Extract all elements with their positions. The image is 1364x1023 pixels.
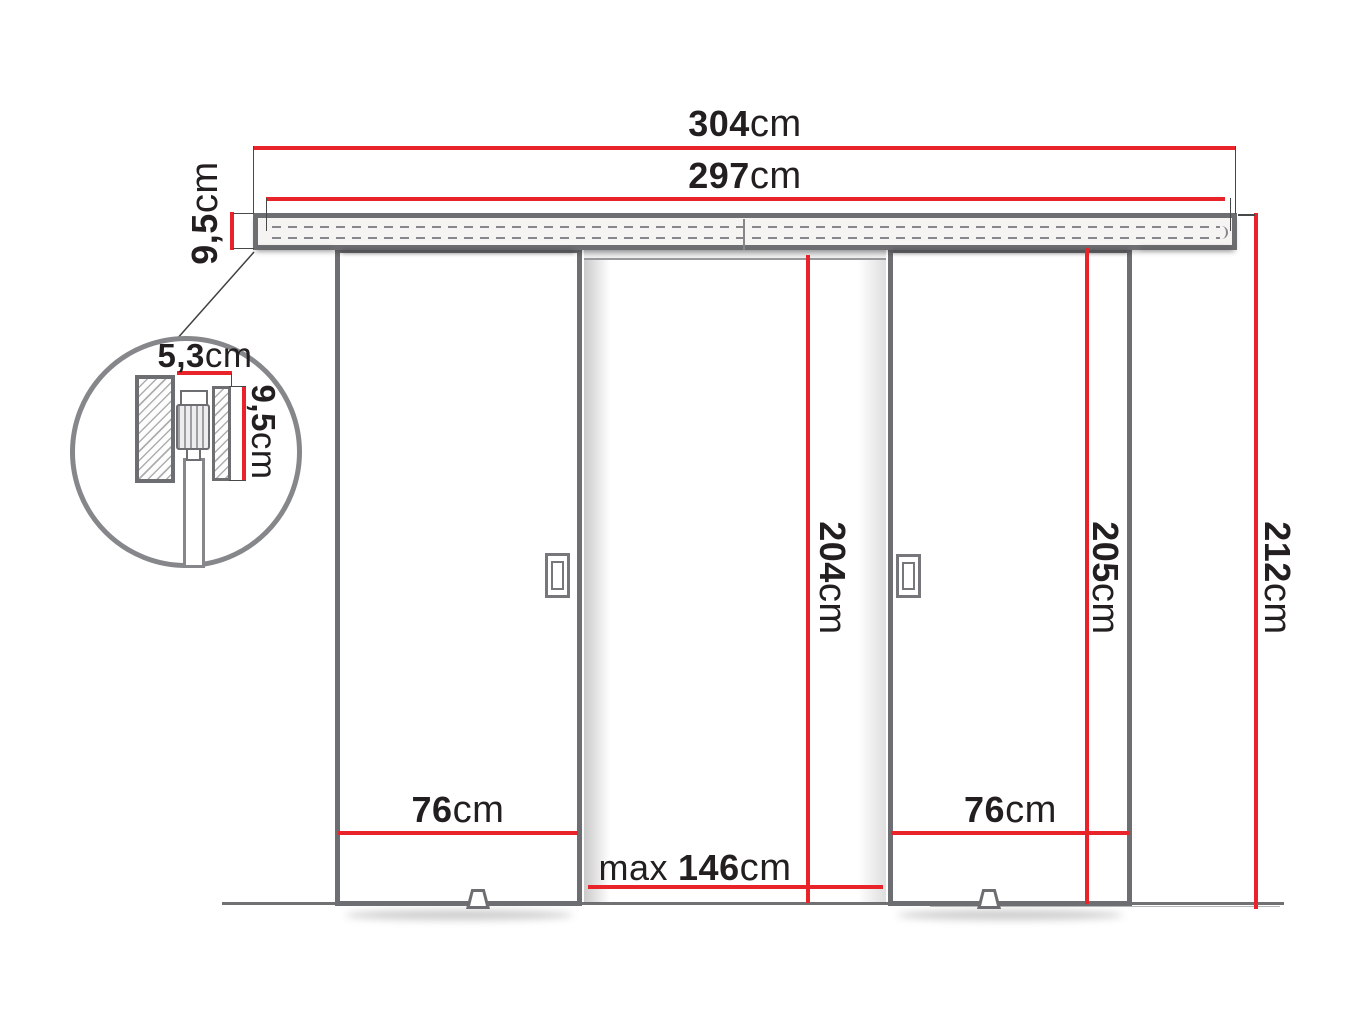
dim-unit-total-height: cm xyxy=(1256,583,1299,635)
left-door-floor-shadow xyxy=(345,910,573,920)
dim-value-detail-depth: 5,3 xyxy=(158,337,205,374)
dim-unit-detail-height: cm xyxy=(244,432,283,480)
rail-shadow-left-door xyxy=(342,249,574,253)
top-rail xyxy=(253,213,1237,250)
floor-guide-left-inner xyxy=(470,892,486,906)
dim-unit-track-length: cm xyxy=(750,154,802,197)
dim-value-left-door-width: 76 xyxy=(412,789,453,830)
dim-label-rail-height: 9,5cm xyxy=(185,148,225,278)
dim-value-total-height: 212 xyxy=(1257,521,1298,583)
ext-line-total-width-right xyxy=(1235,146,1236,214)
dim-line-track-length xyxy=(266,197,1225,201)
dim-value-rail-height: 9,5 xyxy=(184,213,225,265)
ext-line-track-left xyxy=(266,198,267,231)
dim-unit-opening-height: cm xyxy=(811,583,854,635)
dim-line-rail-height xyxy=(230,212,234,250)
dim-label-right-door-width: 76cm xyxy=(891,790,1130,830)
ext-line-track-right xyxy=(1230,198,1231,231)
detail-roller-wheel xyxy=(176,404,210,450)
dim-unit-rail-height: cm xyxy=(183,161,226,213)
dim-value-right-door-width: 76 xyxy=(964,789,1005,830)
rail-shadow-right-door xyxy=(892,249,1128,253)
dim-line-total-width xyxy=(253,146,1235,150)
dim-value-max-opening: 146 xyxy=(678,847,740,888)
detail-door-panel xyxy=(183,458,205,568)
ext-line-total-height-top xyxy=(1238,214,1255,216)
dim-value-door-height: 205 xyxy=(1085,521,1126,583)
detail-wall-block-right xyxy=(212,386,231,481)
dim-label-track-length: 297cm xyxy=(595,156,895,196)
dim-unit-right-door-width: cm xyxy=(1005,788,1057,831)
dim-label-total-width: 304cm xyxy=(595,104,895,144)
sliding-door-dimension-diagram: 304cm 297cm 9,5cm 76cm 76cm max146cm 204… xyxy=(0,0,1364,1023)
dim-label-total-height: 212cm xyxy=(1257,513,1297,643)
ext-line-rail-height-bottom xyxy=(233,248,254,249)
detail-wall-block-left xyxy=(135,375,175,483)
opening-lintel-bar xyxy=(584,249,886,260)
dim-label-left-door-width: 76cm xyxy=(338,790,578,830)
right-door-floor-shadow xyxy=(897,910,1123,920)
rail-center-tick xyxy=(743,219,745,250)
dim-unit-total-width: cm xyxy=(750,102,802,145)
detail-roller-axle xyxy=(186,448,201,461)
dim-unit-left-door-width: cm xyxy=(453,788,505,831)
dim-prefix-max-opening: max xyxy=(599,847,669,888)
dim-line-right-door-width xyxy=(891,831,1130,835)
dim-value-total-width: 304 xyxy=(688,103,750,144)
dim-unit-max-opening: cm xyxy=(740,846,792,889)
dim-label-door-height: 205cm xyxy=(1085,513,1125,643)
dim-unit-door-height: cm xyxy=(1084,583,1127,635)
rail-track-dashed-line-upper xyxy=(272,226,1220,228)
dim-value-track-length: 297 xyxy=(688,155,750,196)
dim-value-detail-height: 9,5 xyxy=(245,385,282,432)
dim-label-detail-height: 9,5cm xyxy=(243,367,283,497)
ext-line-total-width-left xyxy=(253,146,254,214)
opening-right-shadow xyxy=(858,260,886,903)
rail-shadow-right-end xyxy=(1140,247,1232,250)
left-door-handle-inner xyxy=(551,561,564,590)
opening-left-shadow xyxy=(584,260,610,903)
dim-label-opening-height: 204cm xyxy=(812,513,852,643)
dim-line-left-door-width xyxy=(338,831,578,835)
dim-value-opening-height: 204 xyxy=(812,521,853,583)
ext-line-rail-height-top xyxy=(233,213,254,214)
dim-label-max-opening: max146cm xyxy=(555,848,835,888)
floor-guide-right-inner xyxy=(981,892,997,906)
right-door-handle-inner xyxy=(902,562,915,590)
rail-track-dashed-line-lower xyxy=(272,237,1220,239)
dim-line-opening-height xyxy=(806,255,810,903)
rail-shadow-left-end xyxy=(258,247,332,250)
